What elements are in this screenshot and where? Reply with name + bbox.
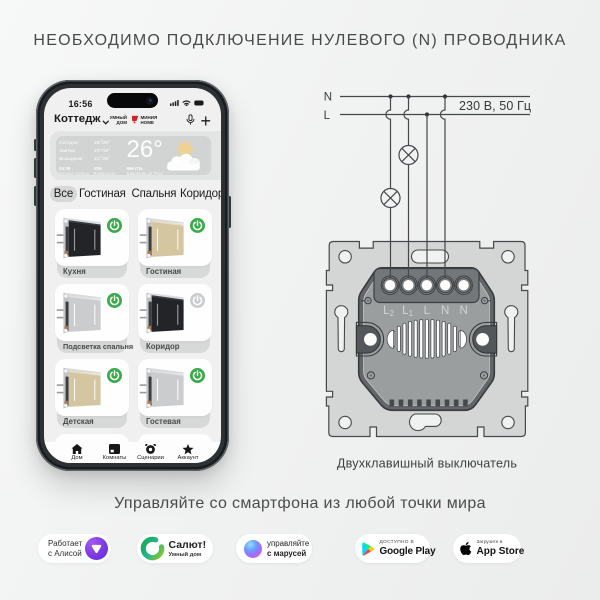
svg-text:230 В, 50 Гц: 230 В, 50 Гц [459, 99, 531, 113]
svg-text:N: N [459, 305, 467, 317]
svg-text:N: N [441, 305, 449, 317]
svg-text:N: N [324, 92, 332, 104]
svg-text:L: L [424, 305, 431, 317]
svg-text:L: L [324, 110, 331, 122]
svg-text:Двухклавишный выключатель: Двухклавишный выключатель [337, 457, 517, 471]
